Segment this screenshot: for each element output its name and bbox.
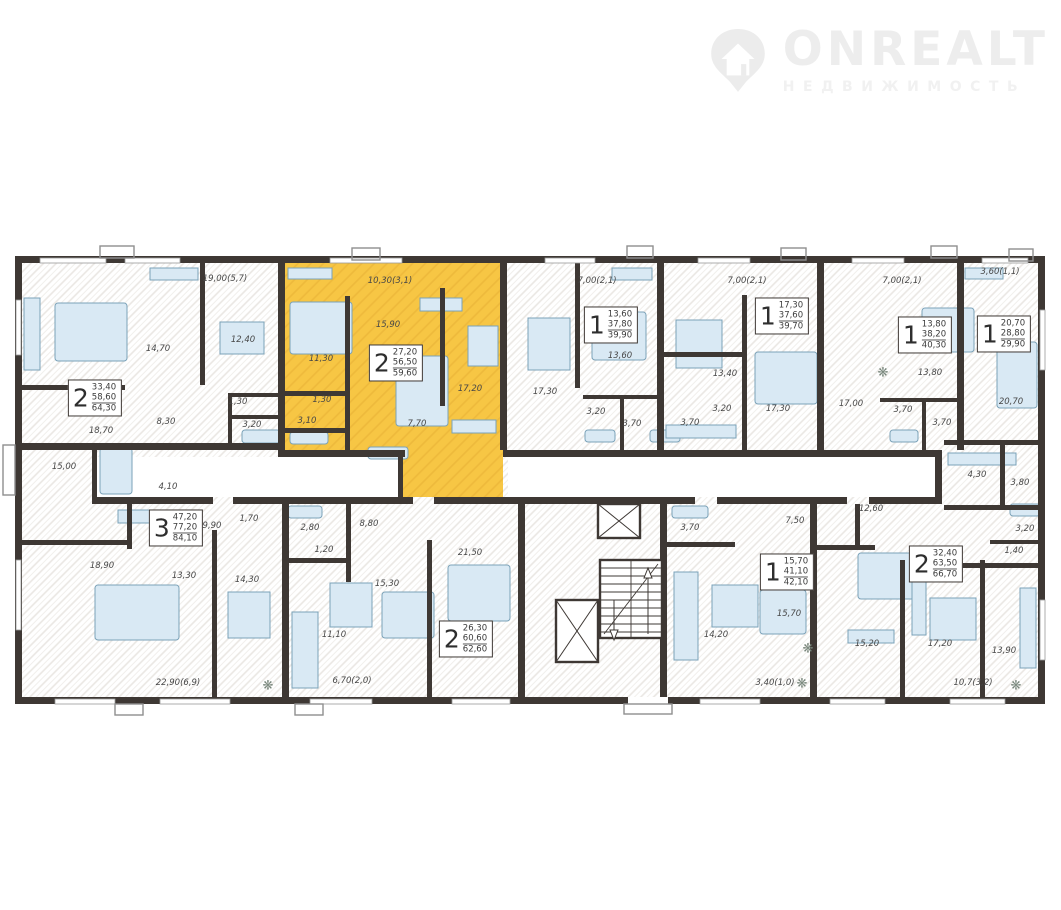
apartment-area-values: 13,8038,2040,30 (922, 319, 946, 350)
room-area-label: 7,70 (408, 419, 427, 429)
apartment-rooms-count: 1 (903, 323, 919, 347)
room-area-label: 17,20 (928, 639, 952, 649)
room-area-label: 11,30 (309, 354, 333, 364)
room-area-label: 18,70 (89, 426, 113, 436)
dimension-label: 6,70(2,0) (332, 676, 371, 686)
plant-icon: ❋ (878, 366, 889, 381)
apartment-area-values: 15,7041,1042,10 (784, 556, 808, 587)
room-area-label: 3,80 (1011, 478, 1030, 488)
room-area-label: 3,20 (1016, 524, 1035, 534)
room-area-label: 4,30 (968, 470, 987, 480)
apartment-label-box: 120,7028,8029,90 (977, 315, 1031, 352)
room-area-label: 3,70 (623, 419, 642, 429)
apartment-label-box: 117,3037,6039,70 (755, 297, 809, 334)
room-area-label: 15,00 (52, 462, 76, 472)
apartment-rooms-count: 1 (760, 304, 776, 328)
room-area-label: 12,40 (231, 335, 255, 345)
plant-icon: ❋ (797, 677, 808, 692)
apartment-rooms-count: 1 (589, 313, 605, 337)
room-area-label: 21,50 (458, 548, 482, 558)
apartment-label-box: 113,6037,8039,90 (584, 306, 638, 343)
apartment-area-values: 33,4058,6064,30 (92, 382, 116, 413)
room-area-label: 3,20 (243, 420, 262, 430)
apartment-rooms-count: 2 (444, 627, 460, 651)
room-area-label: 20,70 (999, 397, 1023, 407)
apartment-rooms-count: 1 (982, 322, 998, 346)
room-area-label: 1,40 (1005, 546, 1024, 556)
room-area-label: 14,70 (146, 344, 170, 354)
apartment-label-box: 347,2077,2084,10 (149, 509, 203, 546)
room-area-label: 13,60 (608, 351, 632, 361)
room-area-label: 4,10 (159, 482, 178, 492)
room-area-label: 15,20 (855, 639, 879, 649)
room-area-label: 13,40 (713, 369, 737, 379)
room-area-label: 3,10 (298, 416, 317, 426)
room-area-label: 14,20 (704, 630, 728, 640)
dimension-label: 10,30(3,1) (368, 276, 412, 286)
room-area-label: 15,90 (376, 320, 400, 330)
room-area-label: 7,50 (786, 516, 805, 526)
room-area-label: 9,90 (203, 521, 222, 531)
room-area-label: 12,60 (859, 504, 883, 514)
apartment-rooms-count: 2 (73, 386, 89, 410)
room-area-label: 17,30 (533, 387, 557, 397)
room-area-label: 3,20 (713, 404, 732, 414)
room-area-label: 1,70 (240, 514, 259, 524)
room-area-label: 1,20 (315, 545, 334, 555)
room-area-label: 17,00 (839, 399, 863, 409)
room-area-label: 13,90 (992, 646, 1016, 656)
apartment-label-box: 227,2056,5059,60 (369, 344, 423, 381)
room-area-label: 13,80 (918, 368, 942, 378)
apartment-rooms-count: 3 (154, 516, 170, 540)
dimension-label: 22,90(6,9) (156, 678, 200, 688)
room-area-label: 3,70 (681, 418, 700, 428)
apartment-area-values: 47,2077,2084,10 (173, 512, 197, 543)
dimension-label: 3,60(1,1) (980, 267, 1019, 277)
apartment-label-box: 115,7041,1042,10 (760, 553, 814, 590)
room-area-label: 17,30 (766, 404, 790, 414)
room-area-label: 14,30 (235, 575, 259, 585)
apartment-area-values: 32,4063,5066,70 (933, 548, 957, 579)
floor-plan-page: ONREALT НЕДВИЖИМОСТЬ (0, 0, 1061, 910)
apartment-rooms-count: 1 (765, 560, 781, 584)
room-area-label: 17,20 (458, 384, 482, 394)
room-area-label: 1,30 (313, 395, 332, 405)
plant-icon: ❋ (263, 679, 274, 694)
room-area-label: 13,30 (172, 571, 196, 581)
room-area-label: 3,20 (587, 407, 606, 417)
room-area-label: 8,30 (157, 417, 176, 427)
dimension-label: 7,00(2,1) (882, 276, 921, 286)
room-area-label: 2,80 (301, 523, 320, 533)
room-area-label: 11,10 (322, 630, 346, 640)
apartment-rooms-count: 2 (374, 351, 390, 375)
room-area-label: 3,70 (894, 405, 913, 415)
dimension-label: 7,00(2,1) (577, 276, 616, 286)
apartment-rooms-count: 2 (914, 552, 930, 576)
room-area-label: 15,30 (375, 579, 399, 589)
labels-layer: 19,00(5,7)10,30(3,1)7,00(2,1)7,00(2,1)7,… (0, 0, 1061, 910)
room-area-label: 3,70 (933, 418, 952, 428)
dimension-label: 3,40(1,0) (755, 678, 794, 688)
dimension-label: 7,00(2,1) (727, 276, 766, 286)
apartment-label-box: 232,4063,5066,70 (909, 545, 963, 582)
room-area-label: 18,90 (90, 561, 114, 571)
dimension-label: 10,7(3,2) (953, 678, 992, 688)
apartment-area-values: 26,3060,6062,60 (463, 623, 487, 654)
plant-icon: ❋ (803, 642, 814, 657)
apartment-label-box: 226,3060,6062,60 (439, 620, 493, 657)
apartment-area-values: 20,7028,8029,90 (1001, 318, 1025, 349)
dimension-label: 19,00(5,7) (203, 274, 247, 284)
apartment-area-values: 27,2056,5059,60 (393, 347, 417, 378)
apartment-label-box: 113,8038,2040,30 (898, 316, 952, 353)
room-area-label: 15,70 (777, 609, 801, 619)
room-area-label: 1,30 (229, 397, 248, 407)
apartment-area-values: 17,3037,6039,70 (779, 300, 803, 331)
room-area-label: 8,80 (360, 519, 379, 529)
apartment-area-values: 13,6037,8039,90 (608, 309, 632, 340)
apartment-label-box: 233,4058,6064,30 (68, 379, 122, 416)
room-area-label: 3,70 (681, 523, 700, 533)
plant-icon: ❋ (1011, 679, 1022, 694)
